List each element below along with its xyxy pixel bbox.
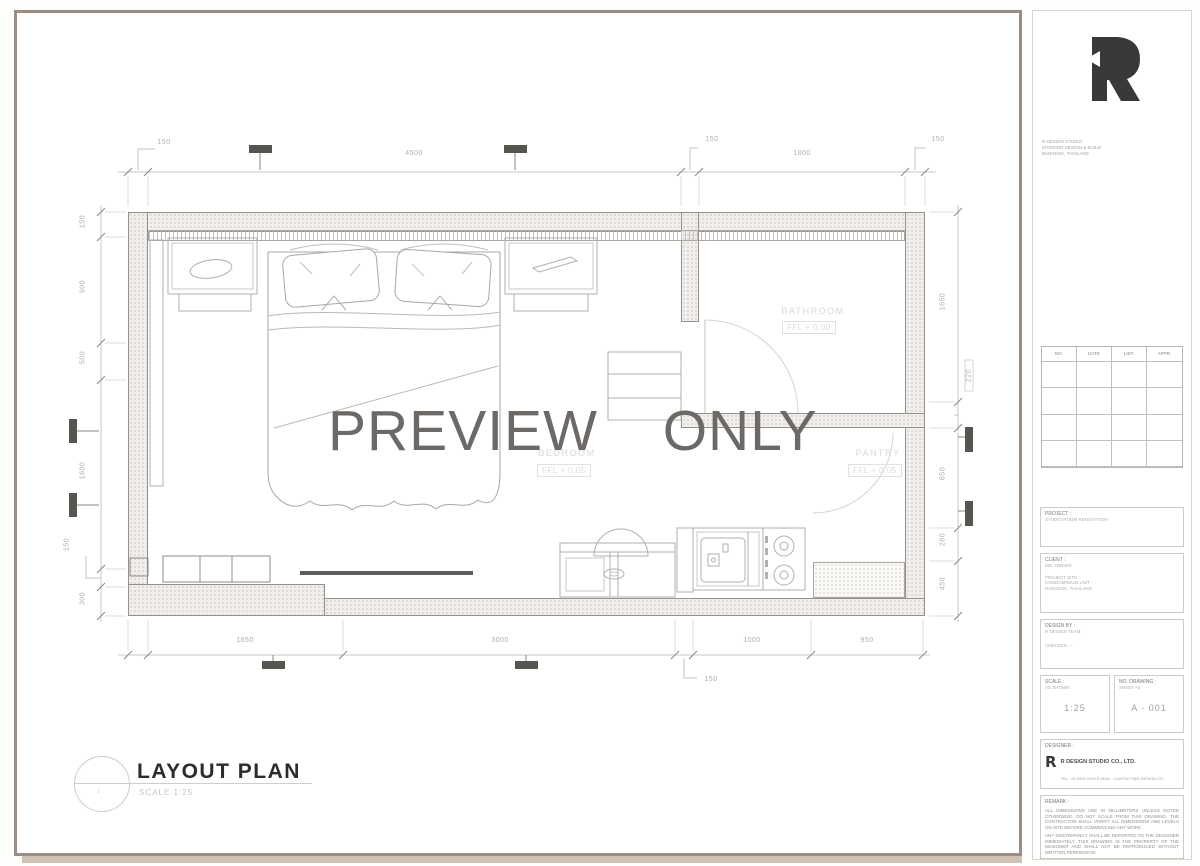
scale-cell: SCALE : AS SHOWN 1:25 (1040, 675, 1110, 733)
scale-value: 1:25 (1045, 703, 1105, 713)
dim-top-150b: 150 (700, 136, 724, 143)
studio-note: R DESIGN STUDIO INTERIOR DESIGN & BUILD … (1042, 139, 1112, 157)
dim-bottom-3000: 3000 (465, 637, 535, 644)
wardrobe-strip (150, 240, 163, 486)
designer-box: DESIGN BY : R DESIGN TEAM CHECKED : - (1040, 619, 1184, 669)
kitchen-stove (763, 528, 805, 590)
studio-note-line3: BANGKOK, THAILAND (1042, 151, 1112, 157)
room-label-pantry: PANTRY (828, 448, 928, 458)
dim-left-500: 500 (80, 343, 87, 373)
revision-header-date: DATE (1077, 347, 1112, 362)
room-level-bathroom: FFL + 0.00 (782, 321, 836, 334)
low-cabinet-boxes (130, 556, 270, 582)
company-logo-r-icon: R (1045, 753, 1057, 771)
dim-bottom-150: 150 (699, 676, 723, 683)
client-line3: BANGKOK, THAILAND (1045, 586, 1179, 592)
revision-header-no: NO. (1042, 347, 1077, 362)
dim-right-280: 280 (940, 525, 947, 555)
dim-top-150c: 150 (926, 136, 950, 143)
dim-left-900: 900 (80, 272, 87, 302)
client-value: MR. OWNER (1045, 563, 1179, 569)
revision-header-list: LIST. (1112, 347, 1147, 362)
dim-top-4500: 4500 (384, 150, 444, 157)
checked-line: CHECKED : - (1045, 643, 1179, 649)
room-label-bathroom: BATHROOM (763, 306, 863, 316)
remark-para2: ANY DISCREPANCY SHALL BE REPORTED TO THE… (1045, 833, 1179, 855)
drawing-no-cell: NO. DRAWING : SHEET A4 A - 001 (1114, 675, 1184, 733)
drawing-no-value: A - 001 (1119, 703, 1179, 713)
logo-r-icon (1084, 37, 1140, 101)
title-bubble-number: 1 (97, 789, 100, 795)
title-bubble (74, 756, 130, 812)
dim-top-1800: 1800 (772, 150, 832, 157)
remark-box: REMARK : ALL DIMENSIONS ARE IN MILLIMETE… (1040, 795, 1184, 859)
nightstand-right (505, 238, 597, 311)
kitchen-sink (693, 528, 763, 590)
title-block-panel: R DESIGN STUDIO INTERIOR DESIGN & BUILD … (1032, 10, 1192, 860)
dim-bottom-1650: 1650 (210, 637, 280, 644)
client-box: CLIENT : MR. OWNER PROJECT SITE : CONDOM… (1040, 553, 1184, 613)
dim-left-150b: 150 (64, 530, 71, 560)
drawing-sheet-page: 150 4500 150 1800 150 1650 3000 150 1000… (0, 0, 1200, 866)
drawing-scale: SCALE 1:25 (139, 788, 193, 797)
room-level-pantry: FFL + 0.05 (848, 464, 902, 477)
dim-right-850: 850 (940, 459, 947, 489)
dim-right-450: 450 (940, 569, 947, 599)
dim-left-1600: 1600 (80, 454, 87, 488)
company-contact: TEL : 00 0000 0000 E-MAIL : CONTACT@R-DE… (1045, 776, 1179, 781)
company-name: R DESIGN STUDIO CO., LTD. (1061, 759, 1136, 765)
company-label: DESIGNER : (1045, 743, 1179, 749)
dim-top-150a: 150 (152, 139, 176, 146)
dim-left-150a: 150 (80, 207, 87, 237)
dim-bottom-950: 950 (837, 637, 897, 644)
dim-bottom-1000: 1000 (722, 637, 782, 644)
desk (560, 543, 675, 597)
revision-header-appr: APPR. (1147, 347, 1182, 362)
remark-para1: ALL DIMENSIONS ARE IN MILLIMETERS UNLESS… (1045, 808, 1179, 830)
drawing-title: LAYOUT PLAN (137, 760, 301, 784)
bed (268, 244, 500, 510)
drawing-no-sub: SHEET A4 (1119, 685, 1179, 691)
tall-cabinet-panel (677, 528, 693, 592)
dim-right-220: 220 (965, 360, 974, 392)
designer-value: R DESIGN TEAM (1045, 629, 1179, 635)
preview-watermark: PREVIEW ONLY (328, 398, 818, 464)
logo (1033, 37, 1191, 106)
tv-unit (300, 571, 473, 575)
scale-drawingno-row: SCALE : AS SHOWN 1:25 NO. DRAWING : SHEE… (1040, 675, 1184, 733)
revision-table: NO. DATE LIST. APPR. (1041, 346, 1183, 468)
scale-sub: AS SHOWN (1045, 685, 1105, 691)
room-level-bedroom: FFL + 0.05 (537, 464, 591, 477)
project-value: STUDIO ROOM RENOVATION (1045, 517, 1179, 523)
dim-left-300: 300 (80, 584, 87, 614)
project-box: PROJECT : STUDIO ROOM RENOVATION (1040, 507, 1184, 547)
company-row: R R DESIGN STUDIO CO., LTD. (1045, 753, 1179, 771)
remark-label: REMARK : (1045, 799, 1179, 805)
dim-right-1650: 1650 (940, 285, 947, 319)
nightstand-left (168, 238, 257, 311)
company-box: DESIGNER : R R DESIGN STUDIO CO., LTD. T… (1040, 739, 1184, 789)
